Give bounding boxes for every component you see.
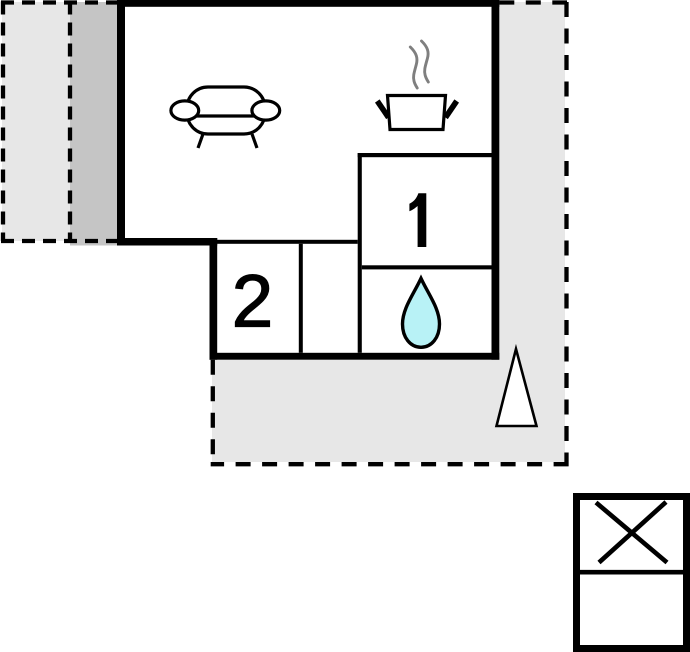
svg-text:2: 2 [232, 260, 273, 343]
